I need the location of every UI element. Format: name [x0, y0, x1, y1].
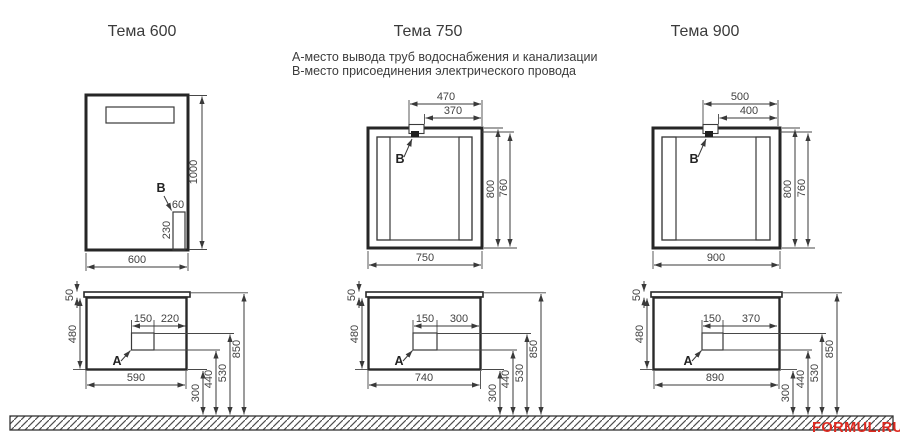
svg-text:1000: 1000 — [188, 160, 200, 184]
mirror-outline — [653, 128, 780, 248]
countertop — [366, 292, 483, 297]
svg-text:300: 300 — [487, 384, 499, 402]
dim-b-offsets: 470 370 — [409, 91, 482, 126]
countertop — [84, 292, 190, 297]
svg-text:760: 760 — [796, 179, 808, 197]
panel-tema-600: 60 230 В 1000 600 50 — [64, 95, 248, 415]
mirror-light-right — [756, 137, 770, 240]
dim-vanity-height: 480 — [634, 299, 653, 370]
legend-line-b: В-место присоединения электрического про… — [292, 64, 576, 78]
dim-drain-offsets: 150 300 — [413, 313, 479, 333]
arrow-point-a — [403, 351, 413, 362]
svg-text:470: 470 — [437, 91, 455, 103]
label-point-a: А — [394, 354, 403, 368]
svg-text:400: 400 — [740, 105, 758, 117]
point-b-mark — [705, 131, 713, 137]
svg-text:740: 740 — [415, 372, 433, 384]
point-a-drain — [413, 333, 437, 350]
label-point-a: А — [112, 354, 121, 368]
dim-vanity-height: 480 — [349, 299, 368, 370]
svg-text:850: 850 — [231, 340, 243, 358]
dim-mirror-width: 900 — [653, 251, 780, 269]
svg-text:370: 370 — [742, 313, 760, 325]
dim-vanity-width: 890 — [654, 371, 779, 389]
label-point-b: В — [395, 152, 404, 166]
mirror-light-right — [459, 137, 472, 240]
svg-text:900: 900 — [707, 252, 725, 264]
dim-mirror-heights: 800 760 — [782, 128, 815, 248]
label-point-a: А — [683, 354, 692, 368]
dim-b-offsets: 500 400 — [703, 91, 778, 126]
mirror-inner-frame — [662, 137, 770, 240]
svg-text:50: 50 — [64, 289, 76, 301]
mirror-inner-frame — [377, 137, 472, 240]
label-point-b: В — [689, 152, 698, 166]
mirror-light-left — [662, 137, 676, 240]
dim-mirror-heights: 800 760 — [484, 128, 517, 248]
mirror-light-left — [377, 137, 390, 240]
panel-title-tema-600: Тема 600 — [108, 23, 177, 40]
point-b-box — [173, 212, 185, 250]
dim-drain-offsets: 150 370 — [702, 313, 777, 333]
svg-text:440: 440 — [203, 370, 215, 388]
svg-text:890: 890 — [706, 372, 724, 384]
svg-text:440: 440 — [795, 370, 807, 388]
svg-text:530: 530 — [514, 364, 526, 382]
dim-b-box-height: 230 — [161, 221, 173, 239]
svg-text:500: 500 — [731, 91, 749, 103]
dim-mirror-width: 600 — [86, 253, 188, 271]
floor-hatch — [10, 416, 893, 430]
point-a-drain — [702, 333, 723, 350]
countertop — [651, 292, 782, 297]
svg-text:370: 370 — [444, 105, 462, 117]
svg-text:800: 800 — [782, 180, 794, 198]
svg-text:300: 300 — [780, 384, 792, 402]
svg-text:150: 150 — [703, 313, 721, 325]
svg-text:480: 480 — [634, 325, 646, 343]
dim-heights-right: 300 440 530 850 — [188, 294, 244, 415]
svg-text:600: 600 — [128, 254, 146, 266]
svg-text:850: 850 — [824, 340, 836, 358]
svg-text:750: 750 — [416, 252, 434, 264]
dim-vanity-height: 480 — [67, 299, 86, 370]
dim-vanity-width: 590 — [86, 371, 186, 389]
dim-counter-thickness: 50 — [631, 281, 644, 308]
svg-text:530: 530 — [217, 364, 229, 382]
svg-text:150: 150 — [416, 313, 434, 325]
dim-counter-thickness: 50 — [64, 281, 77, 308]
svg-text:220: 220 — [161, 313, 179, 325]
svg-text:300: 300 — [190, 384, 202, 402]
svg-text:800: 800 — [485, 180, 497, 198]
svg-text:480: 480 — [67, 325, 79, 343]
panel-title-tema-900: Тема 900 — [671, 23, 740, 40]
dim-counter-thickness: 50 — [346, 281, 359, 308]
svg-text:50: 50 — [631, 289, 643, 301]
mirror-outline — [368, 128, 482, 248]
panel-title-tema-750: Тема 750 — [394, 23, 463, 40]
svg-text:300: 300 — [450, 313, 468, 325]
watermark: FORMUL.RU — [812, 420, 900, 436]
svg-text:50: 50 — [346, 289, 358, 301]
dim-heights-right: 300 440 530 850 — [482, 294, 541, 415]
label-point-b: В — [156, 181, 165, 195]
svg-text:150: 150 — [134, 313, 152, 325]
arrow-point-b — [164, 196, 172, 211]
svg-text:590: 590 — [127, 372, 145, 384]
arrow-point-b — [404, 139, 412, 157]
technical-drawing-page: Тема 600 Тема 750 Тема 900 А-место вывод… — [0, 0, 900, 445]
arrow-point-a — [692, 351, 702, 362]
svg-text:440: 440 — [500, 370, 512, 388]
legend-line-a: А-место вывода труб водоснабжения и кана… — [292, 50, 597, 64]
point-a-drain — [132, 333, 155, 350]
dim-drain-offsets: 150 220 — [132, 313, 186, 333]
dim-b-box-width: 60 — [172, 199, 184, 211]
svg-text:480: 480 — [349, 325, 361, 343]
arrow-point-a — [121, 351, 131, 362]
panel-tema-900: В 500 400 800 760 900 — [631, 91, 842, 415]
dim-mirror-width: 750 — [368, 251, 482, 269]
dim-vanity-width: 740 — [368, 371, 481, 389]
dim-mirror-height: 1000 — [188, 96, 207, 250]
technical-drawing-canvas: Тема 600 Тема 750 Тема 900 А-место вывод… — [0, 0, 900, 445]
svg-text:530: 530 — [809, 364, 821, 382]
svg-text:760: 760 — [498, 179, 510, 197]
mirror-light-strip — [106, 107, 174, 123]
svg-text:850: 850 — [528, 340, 540, 358]
dim-heights-right: 300 440 530 850 — [780, 294, 837, 415]
panel-tema-750: В 470 370 800 760 750 — [346, 91, 546, 415]
point-b-mark — [411, 131, 419, 137]
arrow-point-b — [698, 139, 706, 157]
